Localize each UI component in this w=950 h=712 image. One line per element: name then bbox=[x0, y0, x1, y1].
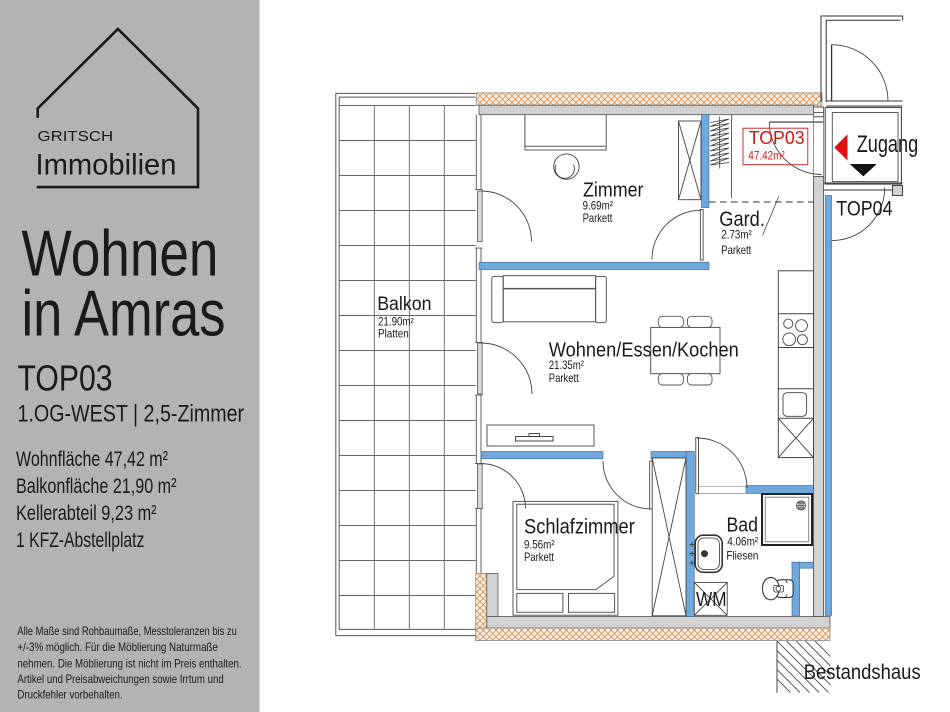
svg-text:Parkett: Parkett bbox=[549, 371, 580, 385]
svg-text:1 KFZ-Abstellplatz: 1 KFZ-Abstellplatz bbox=[16, 529, 144, 552]
svg-text:1.OG-WEST | 2,5-Zimmer: 1.OG-WEST | 2,5-Zimmer bbox=[18, 400, 245, 427]
svg-text:Platten: Platten bbox=[378, 329, 409, 341]
svg-text:4.06m²: 4.06m² bbox=[727, 534, 758, 548]
svg-text:in Amras: in Amras bbox=[22, 276, 226, 349]
svg-text:GRITSCH: GRITSCH bbox=[38, 128, 114, 145]
svg-text:Bad: Bad bbox=[727, 514, 759, 536]
svg-text:Zugang: Zugang bbox=[857, 131, 919, 158]
svg-text:Schlafzimmer: Schlafzimmer bbox=[524, 514, 635, 538]
svg-text:Balkon: Balkon bbox=[377, 294, 431, 315]
svg-text:21.90m²: 21.90m² bbox=[378, 317, 414, 329]
svg-text:Balkonfläche 21,90 m²: Balkonfläche 21,90 m² bbox=[16, 475, 177, 498]
svg-text:Fliesen: Fliesen bbox=[726, 548, 758, 562]
svg-text:TOP04: TOP04 bbox=[836, 198, 892, 221]
svg-text:Wohnfläche 47,42 m²: Wohnfläche 47,42 m² bbox=[16, 448, 168, 471]
svg-text:Parkett: Parkett bbox=[583, 211, 613, 225]
svg-text:nehmen. Die Möblierung ist nic: nehmen. Die Möblierung ist nicht im Prei… bbox=[17, 657, 241, 670]
svg-text:Artikel und Preisabweichungen: Artikel und Preisabweichungen sowie Irrt… bbox=[17, 673, 223, 686]
svg-text:TOP03: TOP03 bbox=[18, 358, 113, 399]
svg-text:Alle Maße sind Rohbaumaße, Mes: Alle Maße sind Rohbaumaße, Messtoleranze… bbox=[17, 625, 236, 638]
svg-text:Bestandshaus: Bestandshaus bbox=[804, 660, 921, 684]
svg-text:Parkett: Parkett bbox=[524, 550, 555, 564]
svg-text:TOP03: TOP03 bbox=[749, 128, 805, 148]
svg-text:2.73m²: 2.73m² bbox=[721, 227, 752, 241]
svg-text:Parkett: Parkett bbox=[721, 243, 752, 257]
svg-text:Immobilien: Immobilien bbox=[36, 149, 177, 182]
svg-text:Druckfehler vorbehalten.: Druckfehler vorbehalten. bbox=[17, 689, 122, 702]
svg-text:47.42m²: 47.42m² bbox=[748, 150, 784, 163]
svg-text:WM: WM bbox=[696, 589, 727, 611]
svg-text:Kellerabteil 9,23 m²: Kellerabteil 9,23 m² bbox=[16, 502, 157, 525]
svg-text:+/-3% möglich. Für die Möblier: +/-3% möglich. Für die Möblierung Naturm… bbox=[17, 641, 218, 654]
